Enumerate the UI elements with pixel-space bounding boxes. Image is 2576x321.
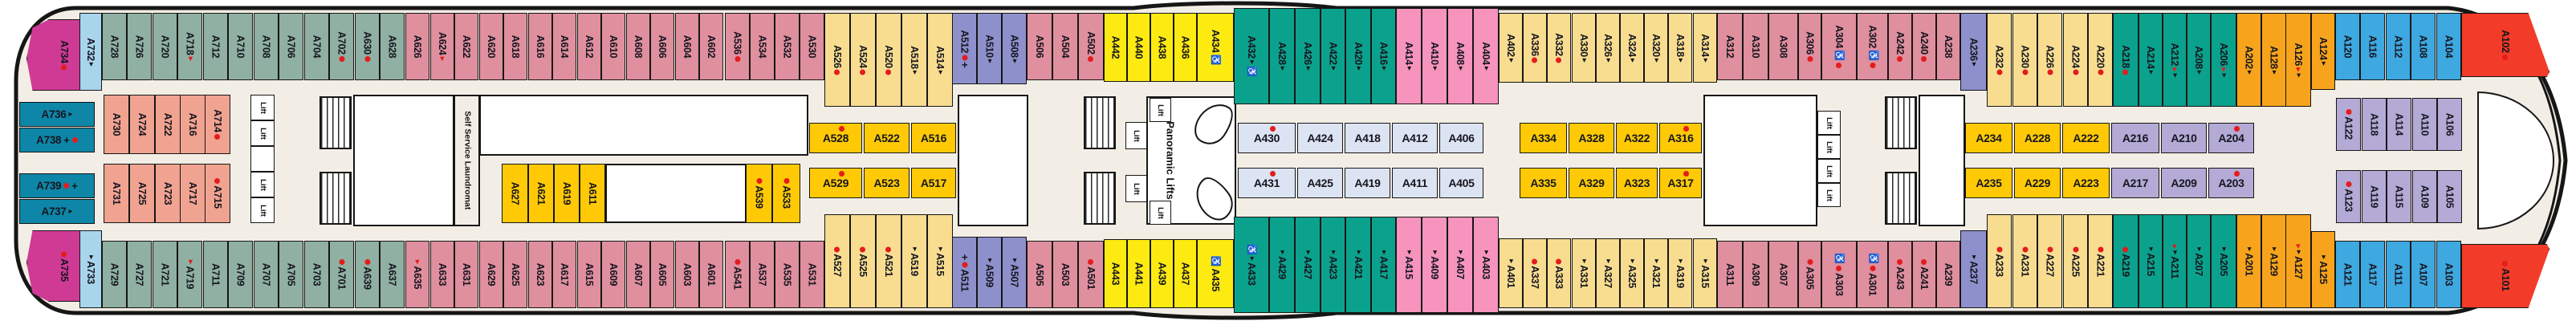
cabin-A111[interactable]: A111 [2386,241,2411,308]
cabin-A622[interactable]: A622 [454,13,478,80]
cabin-A114[interactable]: A114 [2387,98,2411,151]
cabin-A419[interactable]: A419 [1345,168,1390,198]
cabin-A728[interactable]: A728 [102,13,127,80]
cabin-A238[interactable]: A238 [1936,13,1960,80]
cabin-A525[interactable]: A525 [850,214,876,308]
cabin-A403[interactable]: ▸A403 [1473,217,1499,313]
cabin-A304[interactable]: A304♿ [1821,13,1857,80]
cabin-A509[interactable]: ▸A509 [977,237,1002,308]
cabin-A730[interactable]: A730 [104,95,129,154]
cabin-A443[interactable]: A443 [1104,239,1127,308]
triangle-icon: ▸ [1405,250,1413,254]
cabin-A324[interactable]: A324▸ [1620,13,1644,83]
cabin-A417[interactable]: ▸A417 [1371,217,1396,313]
cabin-A517[interactable]: A517 [911,168,956,198]
cabin-A623[interactable]: A623 [528,241,552,308]
cabin-A526[interactable]: A526 [824,13,850,107]
cabin-A126[interactable]: A126▸▸ [2285,13,2311,107]
cabin-A116[interactable]: A116 [2360,13,2385,80]
cabin-A610[interactable]: A610 [601,13,625,80]
cabin-A330[interactable]: A330▸ [1572,13,1596,83]
cabin-A119[interactable]: A119 [2362,170,2387,223]
cabin-A225[interactable]: A225 [2063,214,2088,308]
cabin-A721[interactable]: A721 [153,241,177,308]
cabin-A529[interactable]: A529 [809,168,862,198]
cabin-A511[interactable]: +A511 [952,237,977,308]
cabin-A612[interactable]: A612 [577,13,601,80]
cabin-A112[interactable]: A112 [2386,13,2411,80]
cabin-A534[interactable]: A534 [750,13,775,80]
cabin-A107[interactable]: A107 [2411,241,2436,308]
cabin-A618[interactable]: A618 [503,13,527,80]
cabin-A216[interactable]: A216 [2111,123,2159,153]
cabin-A335[interactable]: A335 [1520,168,1567,198]
cabin-A204[interactable]: A204 [2208,123,2254,153]
cabin-A301[interactable]: ♿A301 [1857,241,1888,308]
cabin-A209[interactable]: A209 [2161,168,2207,198]
cabin-A601[interactable]: A601 [699,241,723,308]
cabin-A332[interactable]: A332 [1547,13,1571,83]
cabin-A504[interactable]: A504 [1052,13,1078,80]
cabin-A120[interactable]: A120 [2335,13,2360,80]
cabin-A627[interactable]: A627 [502,164,528,223]
cabin-label: A622 [461,35,472,59]
cabin-A531[interactable]: A531 [800,241,824,308]
cabin-A731[interactable]: A731 [104,164,129,223]
cabin-A633[interactable]: A633 [430,241,454,308]
cabin-A412[interactable]: A412 [1392,123,1438,153]
cabin-A406[interactable]: A406 [1439,123,1483,153]
cabin-A532[interactable]: A532 [775,13,800,80]
cabin-A230[interactable]: A230 [2012,13,2037,107]
cabin-A535[interactable]: A535 [775,241,800,308]
cabin-A423[interactable]: ▸A423 [1321,217,1345,313]
cabin-A226[interactable]: A226 [2037,13,2062,107]
cabin-label: A124 [2318,37,2329,60]
cabin-A312[interactable]: A312 [1717,13,1743,80]
cabin-A440[interactable]: A440 [1127,13,1150,82]
cabin-A425[interactable]: A425 [1297,168,1343,198]
cabin-A405[interactable]: A405 [1439,168,1483,198]
red-dot-icon [2234,171,2240,177]
cabin-A609[interactable]: A609 [601,241,625,308]
cabin-A334[interactable]: A334 [1520,123,1567,153]
triangle-icon: ▸ [87,62,95,66]
triangle-icon: ▸ [1278,250,1286,254]
cabin-A539[interactable]: A539 [746,164,772,223]
cabin-A719[interactable]: ▸A719 [177,241,202,308]
cabin-A617[interactable]: A617 [552,241,576,308]
cabin-label: A327 [1602,265,1614,288]
lift-label: Lift [1156,207,1165,219]
cabin-A305[interactable]: A305 [1798,241,1821,308]
cabin-A722[interactable]: A722 [155,95,181,154]
cabin-A516[interactable]: A516 [911,123,956,153]
cabin-A608[interactable]: A608 [626,13,650,80]
cabin-A240[interactable]: A240 [1912,13,1936,80]
cabin-label: A726 [134,35,145,59]
cabin-A239[interactable]: A239 [1936,241,1960,308]
cabin-A336[interactable]: A336 [1523,13,1547,83]
lift[interactable]: Lift [1125,175,1147,202]
cabin-A329[interactable]: A329 [1569,168,1614,198]
cabin-A528[interactable]: A528 [809,123,862,153]
cabin-A706[interactable]: A706 [279,13,303,80]
cabin-A232[interactable]: A232 [1987,13,2012,107]
cabin-A524[interactable]: A524 [850,13,876,107]
cabin-A702[interactable]: A702 [329,13,354,80]
cabin-A725[interactable]: A725 [129,164,155,223]
cabin-label: A208 [2193,46,2204,69]
lift[interactable]: Lift [1150,98,1171,122]
cabin-A631[interactable]: A631 [454,241,478,308]
cabin-A714[interactable]: A714 [205,95,230,154]
cabin-A707[interactable]: A707 [254,241,279,308]
cabin-label: A319 [1675,265,1686,288]
cabin-A625[interactable]: A625 [503,241,527,308]
cabin-A401[interactable]: ▸A401 [1499,238,1523,308]
cabin-A501[interactable]: A501 [1078,241,1104,308]
cabin-A319[interactable]: ▸A319 [1668,238,1692,308]
cabin-A738[interactable]: A738+ [19,128,95,152]
red-dot-icon [1557,258,1562,264]
cabin-A434[interactable]: A434♿ [1197,13,1234,82]
cabin-A128[interactable]: A128▸ [2261,13,2286,107]
cabin-A724[interactable]: A724 [129,95,155,154]
cabin-A124[interactable]: A124▸ [2311,13,2335,90]
cabin-A624[interactable]: A624▸ [430,13,454,80]
cabin-A227[interactable]: A227 [2037,214,2062,308]
cabin-A220[interactable]: A220 [2088,13,2113,107]
cabin-A237[interactable]: ▸A237 [1960,230,1987,308]
cabin-A435[interactable]: ♿A435 [1197,239,1234,308]
cabin-A429[interactable]: ▸A429 [1269,217,1295,313]
cabin-A541[interactable]: A541 [725,241,750,308]
cabin-A438[interactable]: A438 [1150,13,1174,82]
cabin-A214[interactable]: A214▸ [2139,13,2163,107]
cabin-A414[interactable]: A414▸ [1396,8,1422,104]
self-service-laundromat: Self Service Laundromat [454,95,480,226]
lift[interactable]: Lift [1817,183,1841,207]
cabin-A217[interactable]: A217 [2111,168,2159,198]
cabin-A726[interactable]: A726 [127,13,152,80]
cabin-A711[interactable]: A711 [203,241,228,308]
cabin-A710[interactable]: A710 [228,13,253,80]
cabin-A709[interactable]: A709 [228,241,253,308]
cabin-A521[interactable]: A521 [876,214,901,308]
cabin-A712[interactable]: A712 [203,13,228,80]
cabin-A407[interactable]: ▸A407 [1447,217,1473,313]
cabin-A602[interactable]: A602 [699,13,723,80]
cabin-A503[interactable]: A503 [1052,241,1078,308]
cabin-A739[interactable]: A739+ [19,173,95,198]
cabin-A321[interactable]: ▸A321 [1644,238,1668,308]
cabin-A703[interactable]: A703 [304,241,329,308]
lift[interactable]: Lift [250,120,275,146]
cabin-A727[interactable]: A727 [127,241,152,308]
cabin-label: A416 [1378,42,1390,65]
cabin-A323[interactable]: A323 [1616,168,1658,198]
cabin-A201[interactable]: ▸A201 [2236,214,2261,308]
cabin-label: A724 [136,113,148,136]
red-dot-icon [835,69,840,75]
lift[interactable]: Lift [250,172,275,197]
cabin-A118[interactable]: A118 [2362,98,2387,151]
cabin-label: A537 [757,263,768,286]
cabin-A127[interactable]: ▸▸A127 [2285,214,2311,308]
cabin-A431[interactable]: A431 [1238,168,1296,198]
cabin-A117[interactable]: A117 [2360,241,2385,308]
cabin-A122[interactable]: A122 [2336,98,2361,151]
cabin-A510[interactable]: A510▸ [977,13,1002,84]
cabin-A337[interactable]: A337 [1523,238,1547,308]
cabin-A506[interactable]: A506 [1027,13,1052,80]
cabin-A603[interactable]: A603 [675,241,699,308]
cabin-A619[interactable]: A619 [554,164,580,223]
cabin-A630[interactable]: A630 [355,13,380,80]
cabin-A537[interactable]: A537 [750,241,775,308]
triangle-icon: ▸ [910,247,918,251]
cabin-A318[interactable]: A318▸ [1668,13,1692,83]
cabin-A224[interactable]: A224 [2063,13,2088,107]
cabin-A315[interactable]: ▸A315 [1693,238,1717,308]
cabin-A207[interactable]: ▸A207 [2187,214,2211,308]
lift[interactable]: Lift [1817,135,1841,159]
cabin-A626[interactable]: A626 [405,13,429,80]
cabin-A223[interactable]: A223 [2062,168,2110,198]
cabin-A508[interactable]: A508▸ [1002,13,1027,84]
cabin-A605[interactable]: A605 [650,241,674,308]
cabin-A512[interactable]: A512+ [952,13,977,84]
cabin-A125[interactable]: ▸A125 [2311,231,2335,308]
cabin-A716[interactable]: A716 [180,95,206,154]
lift[interactable]: Lift [1817,159,1841,183]
cabin-A428[interactable]: A428▸ [1269,8,1295,104]
cabin-A202[interactable]: A202▸ [2236,13,2261,107]
cabin-A316[interactable]: A316 [1659,123,1702,153]
cabin-A436[interactable]: A436 [1174,13,1197,82]
cabin-A242[interactable]: A242 [1888,13,1912,80]
cabin-A320[interactable]: A320▸ [1644,13,1668,83]
cabin-A606[interactable]: A606 [650,13,674,80]
cabin-A520[interactable]: A520 [876,13,901,107]
triangle-icon: ▸ [1580,58,1588,62]
cabin-A604[interactable]: A604 [675,13,699,80]
cabin-A105[interactable]: A105 [2437,170,2462,223]
cabin-A701[interactable]: A701 [329,241,354,308]
cabin-A522[interactable]: A522 [864,123,910,153]
cabin-A235[interactable]: A235 [1965,168,2012,198]
cabin-A442[interactable]: A442 [1104,13,1127,82]
cabin-A203[interactable]: A203 [2208,168,2254,198]
cabin-A302[interactable]: A302♿ [1857,13,1888,80]
cabin-A424[interactable]: A424 [1297,123,1343,153]
cabin-A715[interactable]: A715 [205,164,230,223]
cabin-A322[interactable]: A322 [1616,123,1658,153]
lift[interactable]: Lift [250,197,275,223]
cabin-A402[interactable]: A402▸ [1499,13,1523,83]
cabin-A502[interactable]: A502 [1078,13,1104,80]
lift[interactable]: Lift [1150,201,1171,225]
cabin-A437[interactable]: A437 [1174,239,1197,308]
cabin-A331[interactable]: ▸A331 [1572,238,1596,308]
cabin-A505[interactable]: A505 [1027,241,1052,308]
cabin-A236[interactable]: A236▸ [1960,13,1987,91]
cabin-A704[interactable]: A704 [304,13,329,80]
cabin-A736[interactable]: A736▸ [19,102,95,127]
cabin-A311[interactable]: A311 [1717,241,1743,308]
cabin-A222[interactable]: A222 [2062,123,2110,153]
cabin-label: A125 [2318,261,2329,284]
cabin-A328[interactable]: A328 [1569,123,1614,153]
cabin-A614[interactable]: A614 [552,13,576,80]
cabin-A104[interactable]: A104 [2436,13,2461,80]
cabin-label: A128 [2269,46,2280,69]
cabin-A616[interactable]: A616 [528,13,552,80]
red-dot-icon [215,134,221,140]
cabin-A421[interactable]: ▸A421 [1345,217,1371,313]
cabin-A106[interactable]: A106 [2437,98,2462,151]
cabin-A422[interactable]: A422▸ [1321,8,1345,104]
cabin-A426[interactable]: A426▸ [1295,8,1321,104]
cabin-A518[interactable]: A518▸ [901,13,927,107]
cabin-A527[interactable]: A527 [824,214,850,308]
cabin-A219[interactable]: A219 [2113,214,2139,308]
cabin-label: A729 [109,263,120,286]
cabin-A327[interactable]: ▸A327 [1596,238,1620,308]
cabin-A717[interactable]: A717 [180,164,206,223]
triangle-icon: ▸ [1304,67,1312,71]
cabin-A404[interactable]: A404▸ [1473,8,1499,104]
cabin-A533[interactable]: A533 [772,164,800,223]
cabin-A210[interactable]: A210 [2161,123,2207,153]
cabin-A507[interactable]: ▸A507 [1002,237,1027,308]
cabin-A720[interactable]: A720 [153,13,177,80]
cabin-label: A308 [1778,35,1789,59]
cabin-A523[interactable]: A523 [864,168,910,198]
cabin-A108[interactable]: A108 [2411,13,2436,80]
cabin-A317[interactable]: A317 [1659,168,1702,198]
red-dot-icon [2047,246,2053,252]
cabin-label: A509 [984,264,995,287]
cabin-A415[interactable]: ▸A415 [1396,217,1422,313]
cabin-A234[interactable]: A234 [1965,123,2012,153]
cabin-A639[interactable]: A639 [355,241,380,308]
cabin-A212[interactable]: A212▸▸ [2163,13,2187,107]
triangle-icon: ▸ [2319,255,2327,259]
cabin-A314[interactable]: A314▸ [1693,13,1717,83]
cabin-A729[interactable]: A729 [102,241,127,308]
cabin-A733[interactable]: ▸A733 [79,230,102,308]
cabin-A205[interactable]: ▸A205 [2211,214,2236,308]
cabin-A408[interactable]: A408▸ [1447,8,1473,104]
lift[interactable]: Lift [1125,122,1147,149]
cabin-A629[interactable]: A629 [479,241,503,308]
cabin-A420[interactable]: A420▸ [1345,8,1371,104]
cabin-A326[interactable]: A326▸ [1596,13,1620,83]
cabin-A231[interactable]: A231 [2012,214,2037,308]
cabin-A308[interactable]: A308 [1768,13,1798,80]
cabin-A228[interactable]: A228 [2014,123,2061,153]
cabin-A621[interactable]: A621 [528,164,554,223]
cabin-A208[interactable]: A208▸ [2187,13,2211,107]
cabin-A410[interactable]: A410▸ [1422,8,1447,104]
cabin-label: A616 [535,35,546,59]
cabin-A211[interactable]: ▸▸A211 [2163,214,2187,308]
cabin-A611[interactable]: A611 [580,164,605,223]
cabin-A409[interactable]: ▸A409 [1422,217,1447,313]
cabin-A233[interactable]: A233 [1987,214,2012,308]
cabin-A432[interactable]: A432▸♿ [1234,8,1269,104]
cabin-A306[interactable]: A306 [1798,13,1821,80]
cabin-A241[interactable]: A241 [1912,241,1936,308]
cabin-A129[interactable]: ▸A129 [2261,214,2286,308]
cabin-A411[interactable]: A411 [1392,168,1438,198]
cabin-A515[interactable]: ▸A515 [927,214,953,308]
cabin-A615[interactable]: A615 [577,241,601,308]
cabin-A215[interactable]: ▸A215 [2139,214,2163,308]
lift[interactable]: Lift [1817,111,1841,135]
cabin-A732[interactable]: A732▸ [79,13,102,91]
cabin-A607[interactable]: A607 [626,241,650,308]
cabin-A110[interactable]: A110 [2412,98,2437,151]
cabin-label: A230 [2020,45,2031,68]
cabin-A441[interactable]: A441 [1127,239,1150,308]
cabin-A103[interactable]: A103 [2436,241,2461,308]
cabin-A309[interactable]: A309 [1743,241,1768,308]
cabin-A430[interactable]: A430 [1238,123,1296,153]
cabin-A708[interactable]: A708 [254,13,279,80]
cabin-A536[interactable]: A536 [725,13,750,80]
cabin-A416[interactable]: A416▸ [1371,8,1396,104]
cabin-A229[interactable]: A229 [2014,168,2061,198]
cabin-A218[interactable]: A218 [2113,13,2139,107]
cabin-A737[interactable]: A737▸ [19,199,95,224]
cabin-A705[interactable]: A705 [279,241,303,308]
cabin-A303[interactable]: ♿A303 [1821,241,1857,308]
cabin-A433[interactable]: ♿▸A433 [1234,217,1269,313]
cabin-A121[interactable]: A121 [2335,241,2360,308]
triangle-icon: ▸ [1580,259,1588,263]
cabin-A123[interactable]: A123 [2336,170,2361,223]
cabin-A723[interactable]: A723 [155,164,181,223]
lift[interactable]: Lift [250,95,275,120]
red-dot-icon [2503,55,2509,60]
cabin-A325[interactable]: ▸A325 [1620,238,1644,308]
red-triangle-icon: ▸ [413,260,422,265]
cabin-A530[interactable]: A530 [800,13,824,80]
cabin-A206[interactable]: A206▸▸ [2211,13,2236,107]
cabin-A637[interactable]: A637 [380,241,405,308]
cabin-A514[interactable]: A514▸ [927,13,953,107]
cabin-A418[interactable]: A418 [1345,123,1390,153]
cabin-A635[interactable]: ▸A635 [405,241,429,308]
cabin-A115[interactable]: A115 [2387,170,2411,223]
cabin-A620[interactable]: A620 [479,13,503,80]
cabin-A221[interactable]: A221 [2088,214,2113,308]
cabin-A718[interactable]: A718▸ [177,13,202,80]
cabin-A243[interactable]: A243 [1888,241,1912,308]
triangle-icon: ▸ [2195,70,2203,74]
cabin-A439[interactable]: A439 [1150,239,1174,308]
cabin-A333[interactable]: A333 [1547,238,1571,308]
cabin-A628[interactable]: A628 [380,13,405,80]
cabin-A310[interactable]: A310 [1743,13,1768,80]
cabin-A109[interactable]: A109 [2412,170,2437,223]
cabin-A307[interactable]: A307 [1768,241,1798,308]
cabin-A427[interactable]: ▸A427 [1295,217,1321,313]
cabin-A519[interactable]: ▸A519 [901,214,927,308]
